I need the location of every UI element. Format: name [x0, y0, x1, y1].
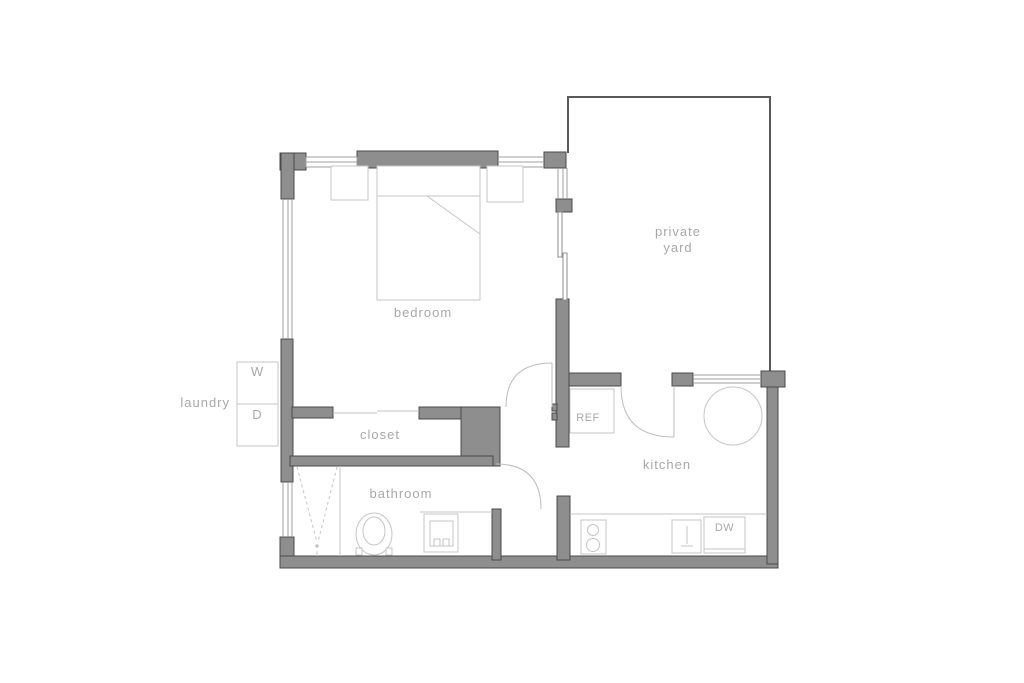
- bedroom-label: bedroom: [377, 305, 469, 321]
- wall-kitchen-cap: [761, 371, 785, 387]
- wall-kitchen-door-stub: [672, 373, 693, 386]
- wall-top-bar: [357, 151, 498, 168]
- refrigerator-label: REF: [570, 410, 606, 426]
- kitchen-label: kitchen: [622, 457, 712, 473]
- window-kitchen-top: [693, 375, 761, 383]
- private-yard-label-line1: private: [628, 224, 728, 240]
- bathroom-door: [496, 464, 541, 509]
- wall-hall-kitchen-stub: [557, 496, 570, 560]
- bathroom-label: bathroom: [360, 486, 442, 502]
- wall-east-block: [556, 199, 572, 212]
- kitchen-door: [621, 386, 674, 437]
- closet-rod: [333, 411, 419, 413]
- bathroom-sink-vanity: [420, 512, 492, 552]
- window-bedroom-east: [558, 168, 567, 199]
- dryer-label: D: [237, 407, 278, 423]
- kitchen-door-arc: [621, 386, 674, 437]
- wall-right: [767, 384, 778, 564]
- closet-label: closet: [334, 427, 426, 443]
- bed: [377, 166, 480, 300]
- stove: [581, 520, 606, 554]
- bedroom-door-arc: [506, 363, 552, 407]
- wall-door-hinge-notch-2: [552, 413, 557, 420]
- window-left-lower: [283, 482, 292, 537]
- nightstand-right: [487, 166, 523, 202]
- bathroom-door-arc: [496, 464, 541, 509]
- private-yard-label-line2: yard: [628, 240, 728, 256]
- wall-closet-south: [290, 456, 493, 466]
- wall-top-right-block: [544, 152, 566, 168]
- shower: [297, 466, 340, 556]
- floor-plan-canvas: bedroom private yard laundry W D closet …: [0, 0, 1024, 683]
- washer-label: W: [237, 364, 278, 380]
- walls: [280, 151, 785, 568]
- windows: [283, 157, 761, 537]
- shower-drain: [315, 544, 319, 548]
- window-left-upper: [283, 199, 292, 339]
- kitchen-sink: [672, 520, 701, 553]
- nightstand-left: [331, 166, 368, 200]
- dining-table: [704, 387, 762, 445]
- wall-closet-north-bar: [419, 407, 463, 419]
- floor-plan-drawing: [0, 0, 1024, 683]
- dishwasher-label: DW: [704, 520, 745, 536]
- wall-bathroom-hall-stub: [492, 509, 501, 560]
- wall-bedroom-kitchen-divider: [556, 299, 569, 447]
- sliding-door: [558, 212, 567, 300]
- bedroom-door: [506, 363, 552, 407]
- toilet: [356, 513, 392, 555]
- wall-bottom: [280, 556, 778, 568]
- laundry-label: laundry: [168, 395, 230, 411]
- private-yard-label: private yard: [628, 224, 728, 256]
- wall-top-left-v: [281, 153, 294, 199]
- wall-closet-north-stub: [292, 407, 333, 418]
- wall-door-hinge-notch-1: [552, 404, 557, 411]
